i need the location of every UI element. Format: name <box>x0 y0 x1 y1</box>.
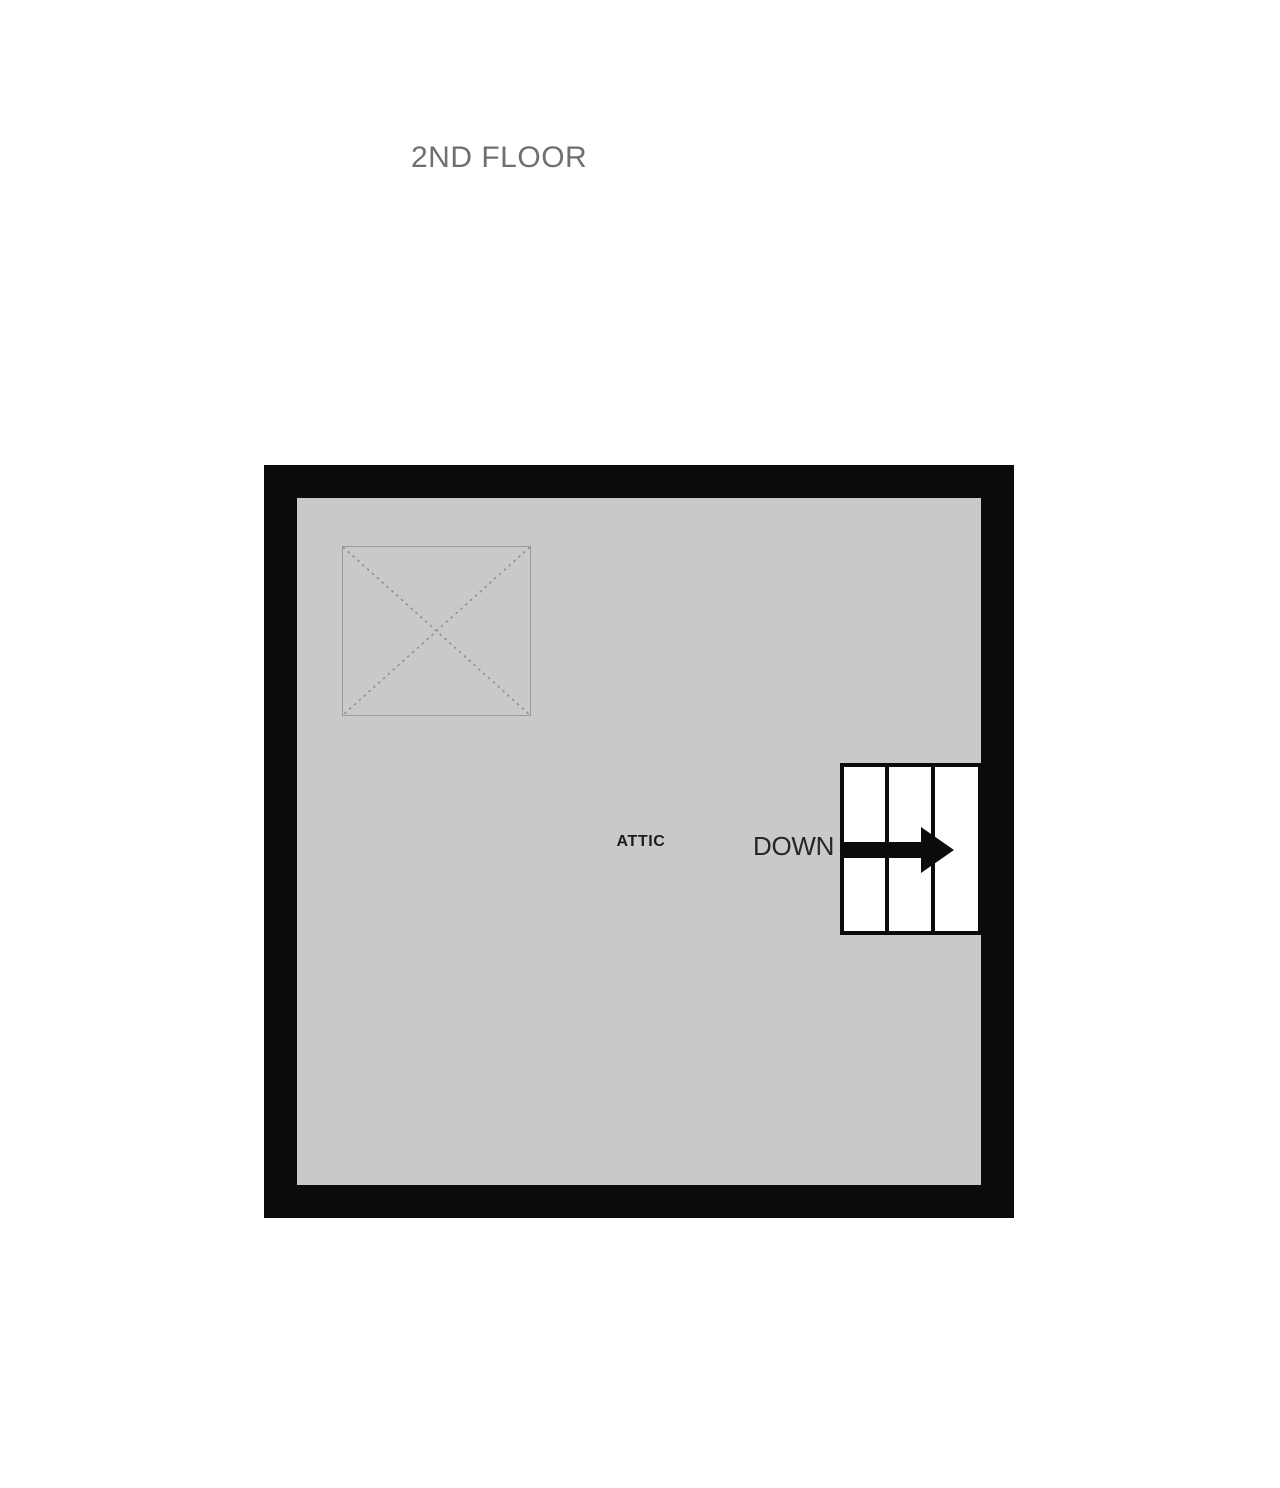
down-arrow-head <box>921 827 954 873</box>
crossed-box-diagonals <box>343 547 530 715</box>
room-label-attic: ATTIC <box>617 833 666 851</box>
stair-direction-label: DOWN <box>753 833 834 859</box>
down-arrow-shaft <box>842 842 921 858</box>
floor-plan-page: 2ND FLOOR ATTIC DOWN <box>0 0 1280 1488</box>
floor-plan-walls: ATTIC DOWN <box>264 465 1014 1218</box>
page-title: 2ND FLOOR <box>411 141 587 175</box>
crossed-box-icon <box>342 546 531 716</box>
down-arrow-icon <box>842 827 954 873</box>
